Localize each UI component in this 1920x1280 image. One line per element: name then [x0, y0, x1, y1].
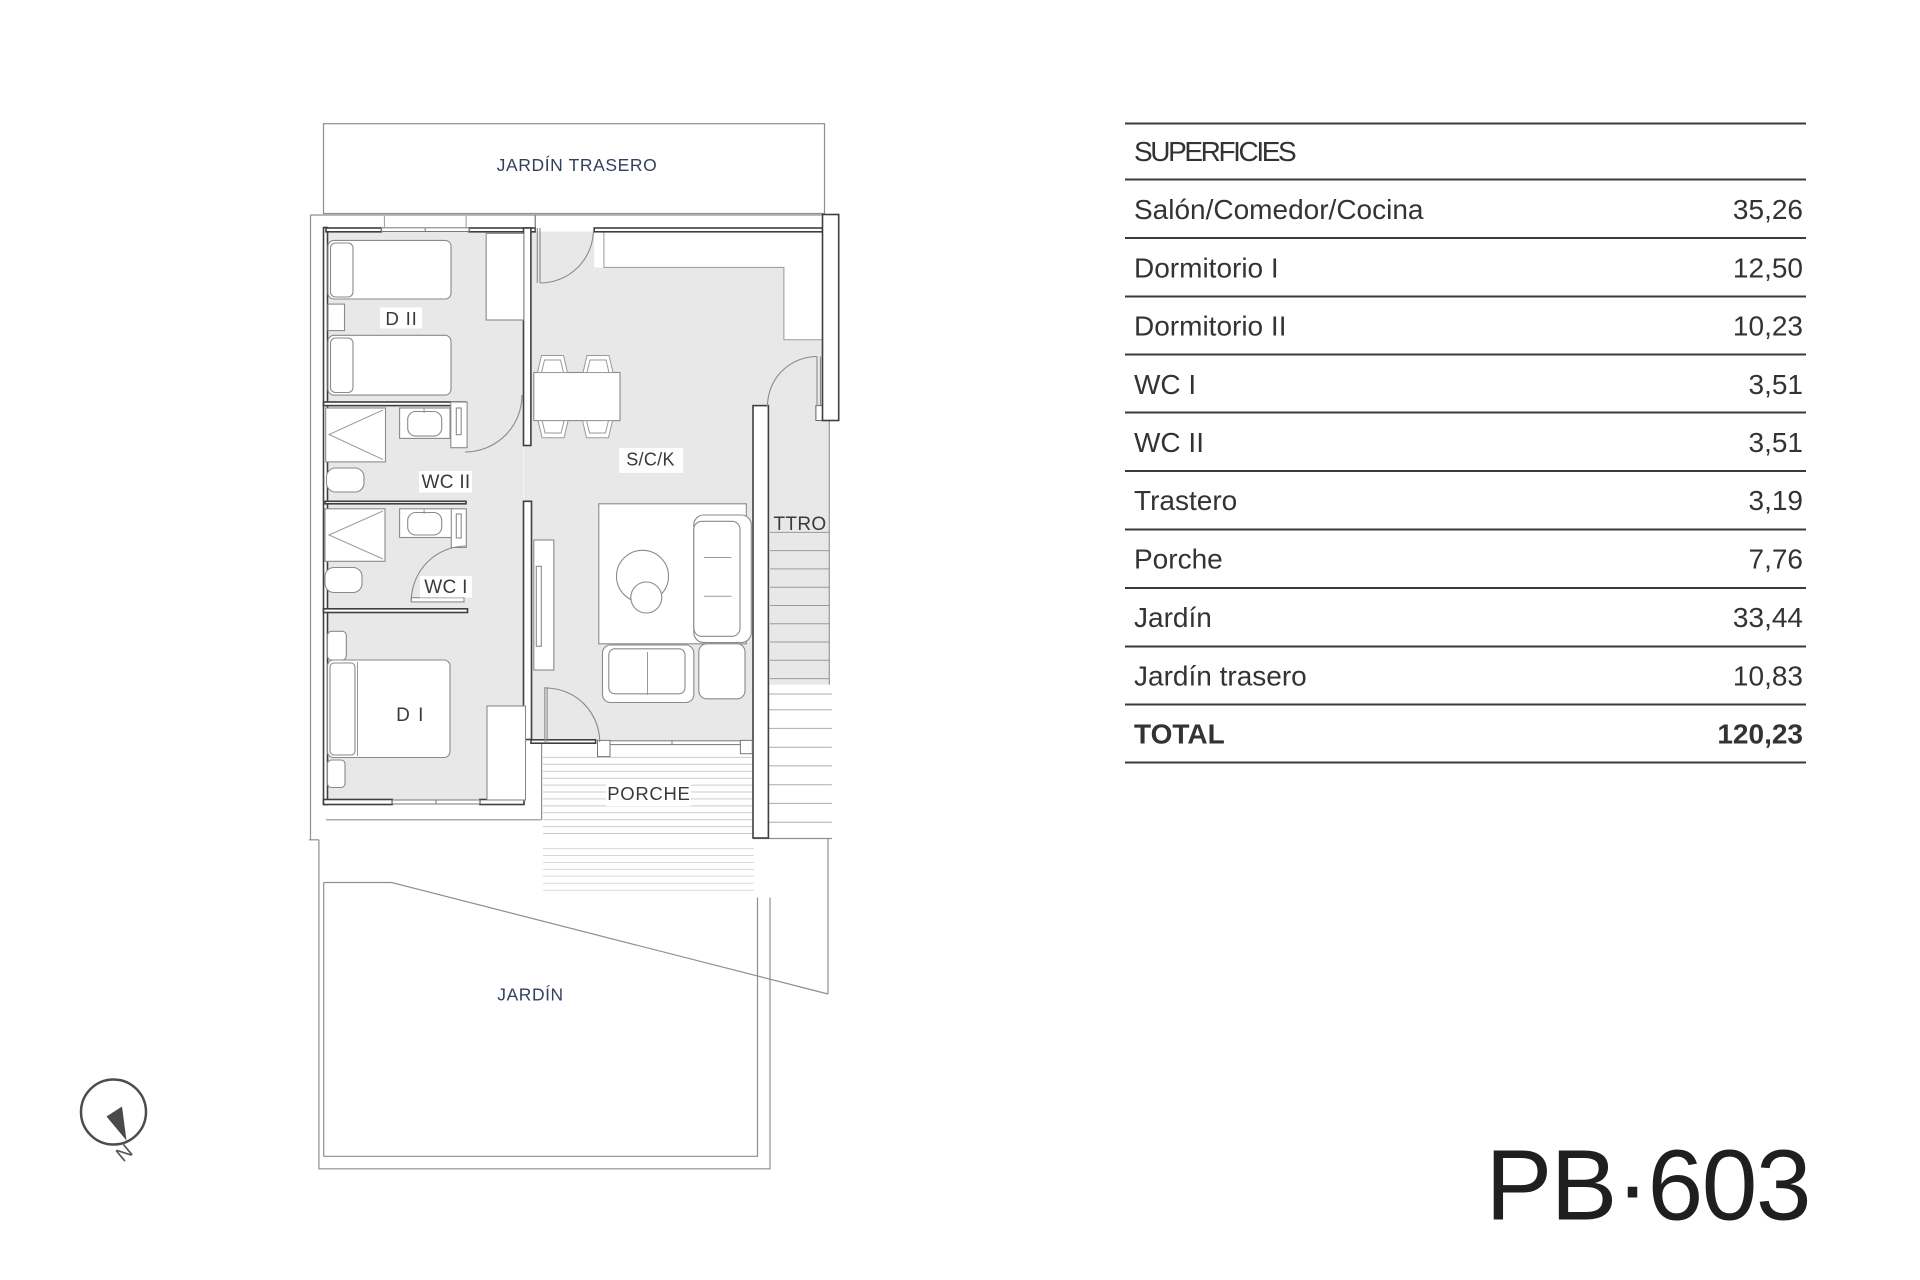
svg-text:3,51: 3,51	[1749, 369, 1804, 400]
svg-text:PORCHE: PORCHE	[607, 783, 690, 804]
svg-text:WC I: WC I	[424, 577, 467, 598]
svg-text:10,83: 10,83	[1733, 661, 1803, 692]
svg-text:WC II: WC II	[422, 472, 471, 493]
svg-text:Dormitorio II: Dormitorio II	[1134, 311, 1286, 342]
svg-text:3,51: 3,51	[1749, 427, 1804, 458]
svg-text:Jardín: Jardín	[1134, 602, 1212, 633]
svg-text:120,23: 120,23	[1717, 719, 1803, 750]
svg-text:3,19: 3,19	[1749, 485, 1804, 516]
svg-text:33,44: 33,44	[1733, 602, 1803, 633]
svg-text:Salón/Comedor/Cocina: Salón/Comedor/Cocina	[1134, 194, 1424, 225]
svg-text:Porche: Porche	[1134, 544, 1223, 575]
svg-text:Jardín trasero: Jardín trasero	[1134, 661, 1307, 692]
svg-text:Dormitorio I: Dormitorio I	[1134, 253, 1279, 284]
svg-text:SUPERFICIES: SUPERFICIES	[1134, 136, 1296, 167]
svg-text:TTRO: TTRO	[774, 514, 827, 535]
svg-text:10,23: 10,23	[1733, 311, 1803, 342]
svg-text:WC II: WC II	[1134, 427, 1204, 458]
svg-text:7,76: 7,76	[1749, 544, 1804, 575]
svg-text:JARDÍN: JARDÍN	[497, 985, 563, 1005]
svg-text:PB·603: PB·603	[1485, 1130, 1810, 1242]
svg-text:12,50: 12,50	[1733, 253, 1803, 284]
svg-text:TOTAL: TOTAL	[1134, 719, 1225, 750]
svg-text:S/C/K: S/C/K	[626, 450, 675, 470]
svg-text:JARDÍN TRASERO: JARDÍN TRASERO	[497, 155, 658, 175]
svg-text:WC I: WC I	[1134, 369, 1196, 400]
svg-text:D I: D I	[396, 705, 425, 726]
svg-text:35,26: 35,26	[1733, 194, 1803, 225]
svg-text:Trastero: Trastero	[1134, 485, 1237, 516]
svg-text:D II: D II	[385, 308, 417, 329]
